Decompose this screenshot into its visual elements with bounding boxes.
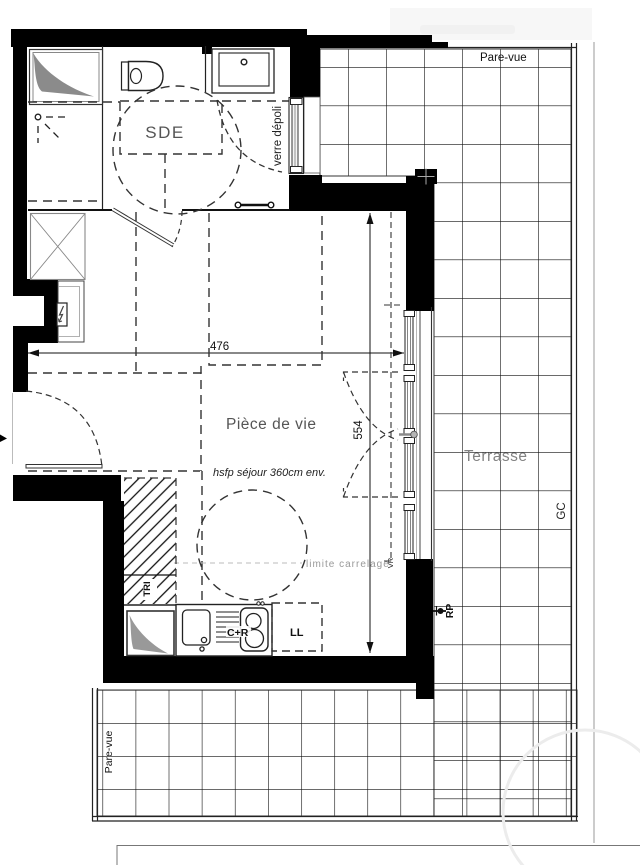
- svg-text:476: 476: [210, 341, 229, 353]
- svg-text:C+R: C+R: [227, 627, 249, 639]
- svg-text:GC: GC: [556, 502, 568, 519]
- svg-text:Terrasse: Terrasse: [464, 448, 527, 465]
- svg-text:LL: LL: [290, 627, 304, 639]
- svg-text:TRI: TRI: [142, 581, 153, 596]
- svg-text:554: 554: [353, 420, 365, 440]
- svg-text:Pare-vue: Pare-vue: [480, 52, 527, 64]
- svg-text:SDE: SDE: [145, 123, 184, 142]
- svg-text:Pièce de vie: Pièce de vie: [226, 416, 316, 433]
- svg-text:verre dépoli: verre dépoli: [272, 106, 284, 166]
- svg-text:hsfp séjour 360cm env.: hsfp séjour 360cm env.: [213, 467, 326, 479]
- svg-text:RP: RP: [444, 604, 456, 619]
- svg-text:Pare-vue: Pare-vue: [103, 731, 115, 774]
- svg-text:limite carrelage: limite carrelage: [306, 559, 390, 570]
- svg-text:VR: VR: [386, 557, 395, 568]
